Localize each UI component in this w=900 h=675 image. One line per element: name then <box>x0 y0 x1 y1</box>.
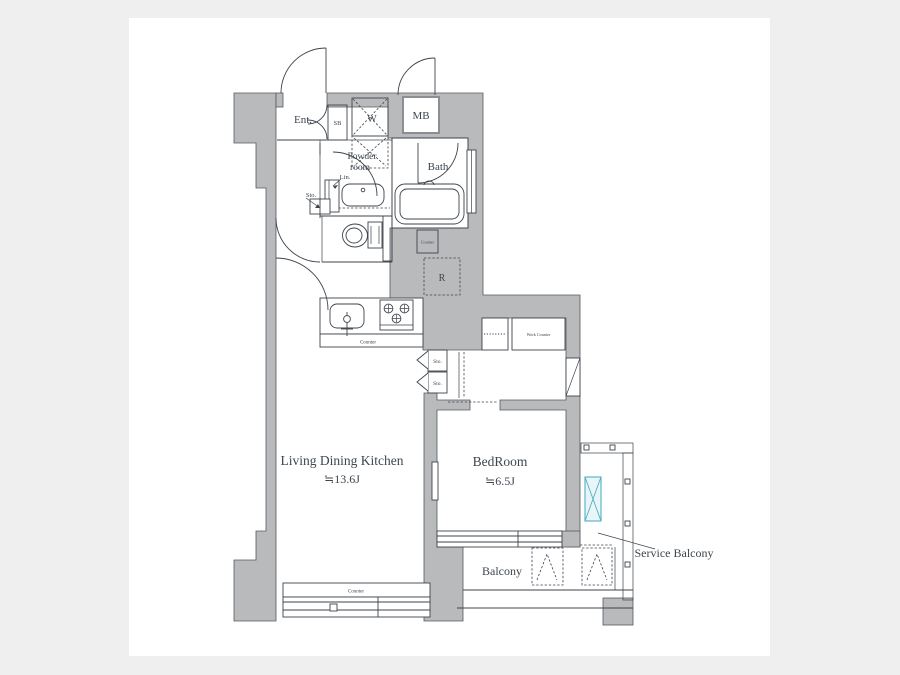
linen-label: Lin. <box>340 174 351 181</box>
floor-plan-svg: Ent. SB W MB Powder room Bath Lin. Sto. … <box>0 0 900 675</box>
powder-room-label-2: room <box>350 163 371 173</box>
shoe-box-label: SB <box>334 120 343 127</box>
entrance-label: Ent. <box>294 114 312 126</box>
wall-bedroom-bottom-right <box>560 531 580 547</box>
washbasin <box>342 184 384 206</box>
ldk-counter-label: Counter <box>348 590 364 595</box>
floor-plan-page: Ent. SB W MB Powder room Bath Lin. Sto. … <box>0 0 900 675</box>
kitchen-counter-label: Counter <box>360 341 376 346</box>
service-balcony-label: Service Balcony <box>635 546 714 560</box>
water-heater-icon <box>585 477 601 521</box>
ldk-label: Living Dining Kitchen <box>281 453 404 468</box>
ldk-window-lines <box>283 597 430 617</box>
wall-counter-label: Counter <box>421 240 435 245</box>
bedroom-label: BedRoom <box>473 454 528 469</box>
bathtub <box>395 181 464 224</box>
bedroom-storage-label-1: Sto. <box>433 359 442 365</box>
bedroom-size-label: ≒6.5J <box>485 474 515 488</box>
wall-top-stub <box>276 93 283 107</box>
wall-balcony-corner <box>603 598 633 625</box>
bedroom-storage-label-2: Sto. <box>433 381 442 387</box>
bedroom-balcony-window <box>437 531 562 547</box>
ldk-size-label: ≒13.6J <box>324 472 360 486</box>
toilet-fixture <box>343 222 383 248</box>
bedroom-side-window <box>566 358 580 396</box>
powder-room-label-1: Powder <box>347 152 377 162</box>
washer-label: W <box>367 114 377 125</box>
meter-box-label: MB <box>412 110 429 122</box>
bedroom-wall-niche <box>432 462 438 500</box>
bath-label: Bath <box>428 161 449 173</box>
balcony-label: Balcony <box>482 564 522 578</box>
refrigerator-label: R <box>439 273 446 284</box>
work-counter-label: Work Counter <box>527 332 551 337</box>
hall-storage-label: Sto. <box>306 192 317 199</box>
stove <box>380 300 413 330</box>
